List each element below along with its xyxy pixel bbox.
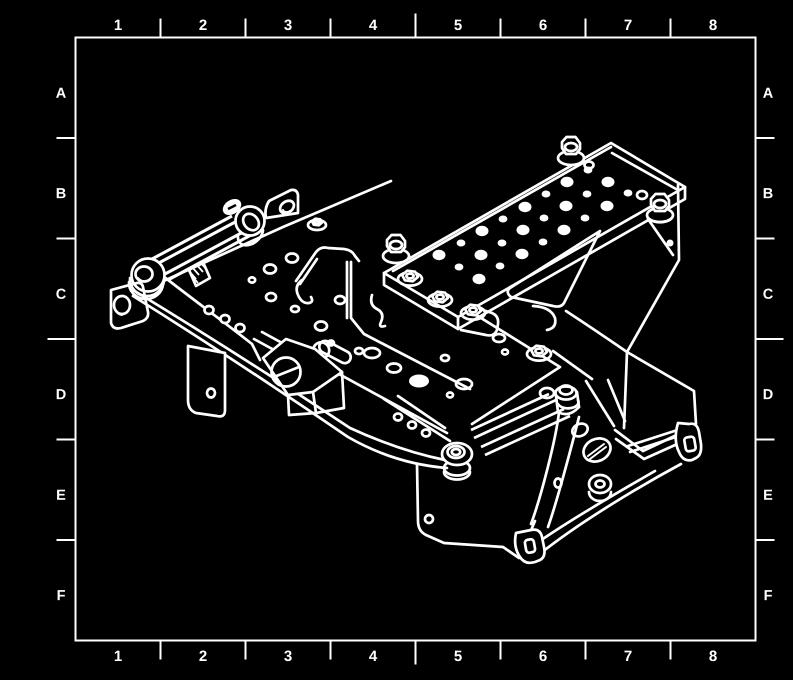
- svg-text:E: E: [763, 488, 773, 504]
- svg-text:2: 2: [199, 648, 207, 665]
- svg-text:6: 6: [539, 17, 547, 34]
- svg-text:D: D: [763, 387, 774, 403]
- svg-text:3: 3: [284, 648, 292, 665]
- svg-text:6: 6: [539, 648, 547, 665]
- svg-text:3: 3: [284, 17, 292, 34]
- svg-text:4: 4: [369, 648, 378, 665]
- svg-text:F: F: [764, 588, 773, 604]
- svg-text:2: 2: [199, 17, 207, 34]
- svg-text:C: C: [763, 287, 774, 303]
- svg-text:8: 8: [709, 17, 717, 34]
- svg-text:B: B: [56, 186, 67, 202]
- svg-text:B: B: [763, 186, 774, 202]
- svg-text:7: 7: [624, 648, 632, 665]
- svg-text:4: 4: [369, 17, 378, 34]
- svg-text:E: E: [56, 488, 66, 504]
- svg-text:1: 1: [114, 17, 122, 34]
- svg-text:1: 1: [114, 648, 122, 665]
- svg-text:5: 5: [454, 17, 462, 34]
- svg-text:D: D: [56, 387, 67, 403]
- svg-text:C: C: [56, 287, 67, 303]
- svg-text:8: 8: [709, 648, 717, 665]
- svg-text:5: 5: [454, 648, 462, 665]
- svg-text:A: A: [763, 86, 774, 102]
- svg-text:F: F: [57, 588, 66, 604]
- svg-text:A: A: [56, 86, 67, 102]
- svg-text:7: 7: [624, 17, 632, 34]
